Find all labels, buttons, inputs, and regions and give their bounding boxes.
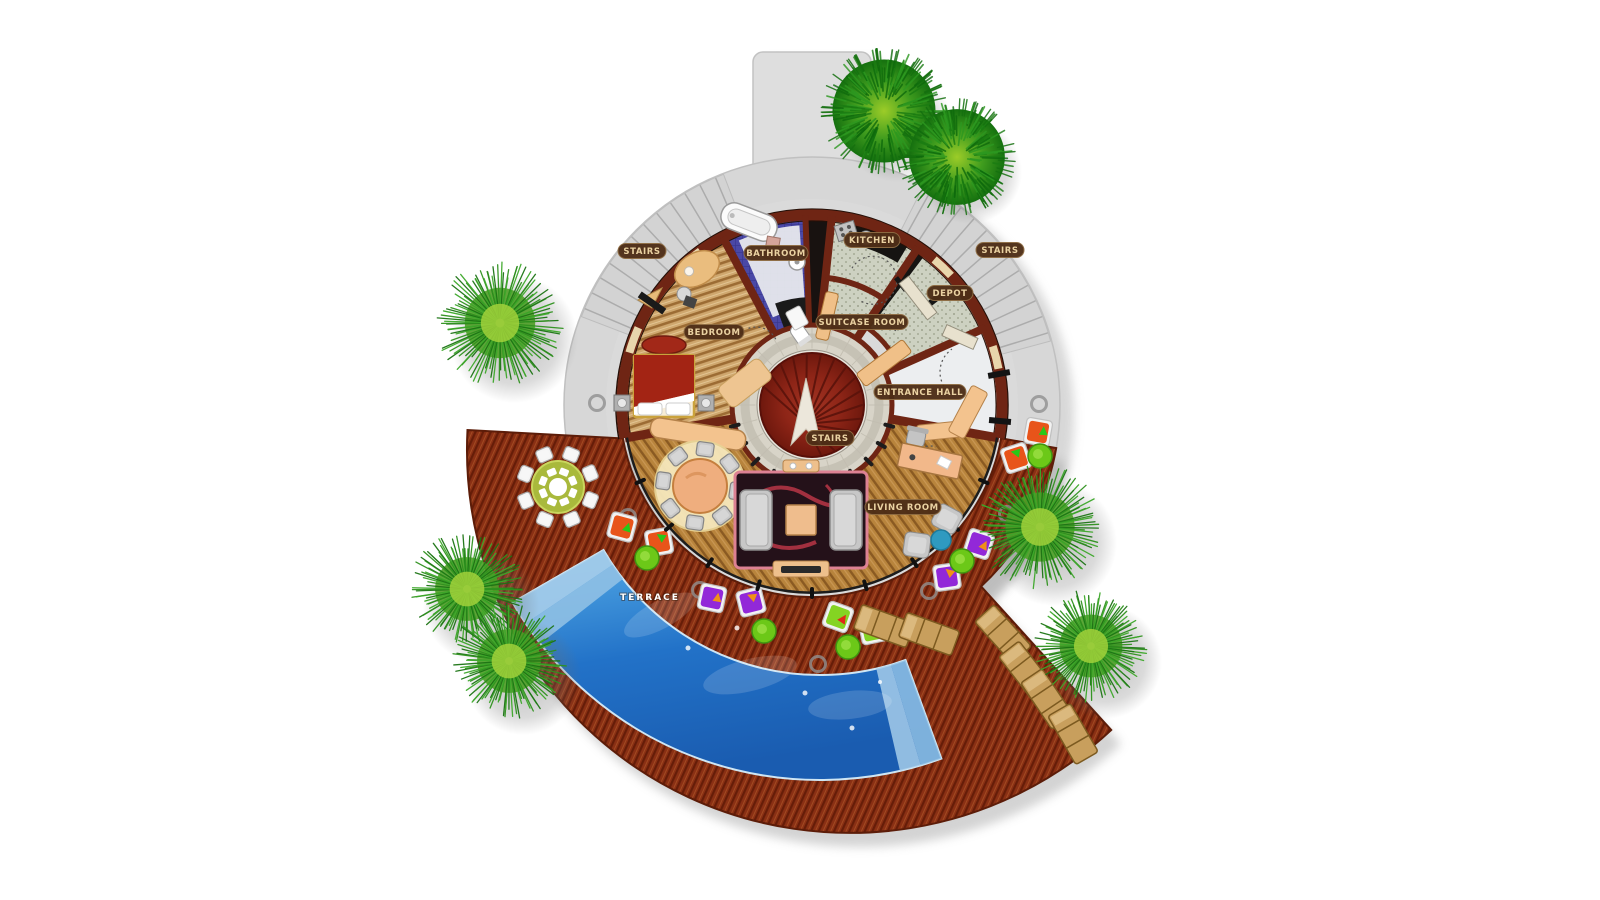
dining-table bbox=[673, 459, 727, 513]
chair bbox=[655, 471, 671, 490]
svg-text:LIVING ROOM: LIVING ROOM bbox=[867, 503, 938, 513]
ottoman bbox=[1028, 444, 1052, 468]
svg-text:BEDROOM: BEDROOM bbox=[688, 328, 741, 338]
svg-text:SUITCASE ROOM: SUITCASE ROOM bbox=[819, 318, 906, 328]
floor-plan-canvas: STAIRS BATHROOM KITCHEN STAIRS DEPOT SUI… bbox=[0, 0, 1600, 900]
svg-text:ENTRANCE HALL: ENTRANCE HALL bbox=[877, 388, 963, 398]
ottoman bbox=[836, 635, 860, 659]
ottoman bbox=[752, 619, 776, 643]
bean-bag bbox=[735, 586, 767, 618]
ottoman bbox=[950, 549, 974, 573]
blue-ottoman bbox=[931, 530, 951, 550]
suitcase-room-label: SUITCASE ROOM bbox=[816, 315, 908, 330]
bean-bag bbox=[1023, 417, 1053, 447]
svg-text:STAIRS: STAIRS bbox=[811, 434, 848, 444]
sofa-set bbox=[735, 460, 867, 568]
terrace-label: TERRACE bbox=[620, 593, 680, 603]
chair bbox=[696, 441, 715, 457]
sofa bbox=[740, 490, 772, 550]
depot-label: DEPOT bbox=[927, 286, 973, 301]
living-room-label: LIVING ROOM bbox=[865, 500, 941, 515]
svg-text:STAIRS: STAIRS bbox=[623, 247, 660, 257]
svg-text:DEPOT: DEPOT bbox=[932, 289, 967, 299]
sofa bbox=[830, 490, 862, 550]
stairs-left-label: STAIRS bbox=[618, 244, 666, 259]
entrance-hall-label: ENTRANCE HALL bbox=[874, 385, 966, 400]
svg-text:KITCHEN: KITCHEN bbox=[849, 236, 895, 246]
svg-text:BATHROOM: BATHROOM bbox=[746, 249, 806, 259]
ottoman bbox=[635, 546, 659, 570]
svg-text:STAIRS: STAIRS bbox=[981, 246, 1018, 256]
chair bbox=[685, 515, 704, 531]
coffee-table bbox=[786, 505, 816, 535]
tv-console bbox=[773, 561, 829, 577]
bathroom-label: BATHROOM bbox=[744, 246, 808, 261]
bedroom-label: BEDROOM bbox=[684, 325, 744, 340]
kitchen-label: KITCHEN bbox=[844, 233, 900, 248]
stairs-right-label: STAIRS bbox=[976, 243, 1024, 258]
floor-plan-page: STAIRS BATHROOM KITCHEN STAIRS DEPOT SUI… bbox=[0, 0, 1600, 900]
bean-bag bbox=[697, 583, 728, 614]
palm-tree bbox=[437, 262, 578, 403]
outdoor-table-center bbox=[549, 478, 567, 496]
stairs-center-label: STAIRS bbox=[806, 431, 854, 446]
armchair bbox=[902, 531, 931, 558]
